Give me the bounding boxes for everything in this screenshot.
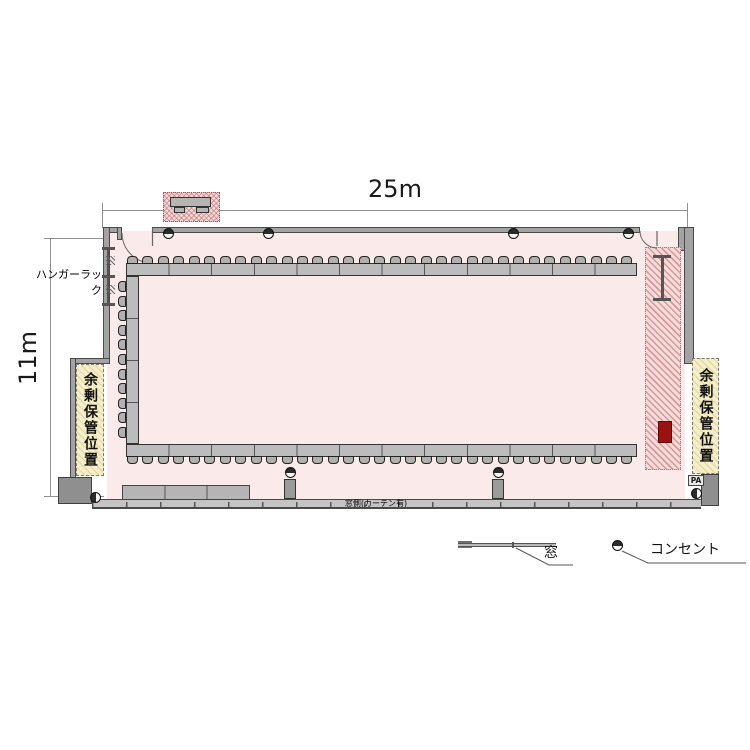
chair — [127, 456, 138, 464]
outlet-icon — [263, 228, 274, 239]
floor-outlet-pedestal — [492, 479, 504, 499]
floor-plan: 余剰保管位置 余剰保管位置 PA 窓 コンセント 25m 11m ハンガーラック… — [0, 0, 750, 750]
chair — [118, 398, 126, 409]
chair — [405, 456, 416, 464]
chair — [118, 383, 126, 394]
chair — [312, 256, 323, 264]
chair — [467, 256, 478, 264]
chair — [118, 369, 126, 380]
reception-table-leg — [196, 207, 209, 213]
chair — [529, 256, 540, 264]
outlet-icon — [623, 228, 634, 239]
chair — [142, 456, 153, 464]
chair — [405, 256, 416, 264]
chair — [359, 256, 370, 264]
chair — [575, 256, 586, 264]
chair — [390, 256, 401, 264]
window-counter — [122, 485, 250, 500]
dimension-tick — [102, 203, 103, 228]
table-column-left — [126, 276, 139, 444]
chair — [343, 256, 354, 264]
bottom-left-wall-block — [58, 477, 92, 504]
surplus-storage-right: 余剰保管位置 — [692, 358, 719, 474]
chair — [575, 456, 586, 464]
chair — [142, 256, 153, 264]
chair — [482, 256, 493, 264]
chair — [118, 339, 126, 350]
chair — [498, 256, 509, 264]
chair — [436, 256, 447, 264]
outlet-icon — [612, 540, 623, 551]
equipment-box — [658, 421, 672, 443]
chair — [118, 412, 126, 423]
chair — [118, 427, 126, 438]
rack-symbol-spine — [661, 256, 664, 300]
surplus-storage-left-label: 余剰保管位置 — [77, 365, 103, 475]
reception-table-leg — [174, 207, 185, 213]
chair — [312, 456, 323, 464]
chair — [513, 256, 524, 264]
legend-window-bar — [458, 543, 556, 547]
chair — [436, 456, 447, 464]
dimension-tick — [687, 203, 688, 228]
outlet-icon — [285, 467, 296, 478]
chair — [189, 256, 200, 264]
dimension-height-label: 11m — [14, 321, 48, 395]
chair — [421, 256, 432, 264]
chair — [374, 456, 385, 464]
chair — [118, 296, 126, 307]
chair — [513, 456, 524, 464]
pa-box: PA — [688, 475, 704, 486]
chair — [529, 456, 540, 464]
chair — [421, 456, 432, 464]
chair — [235, 456, 246, 464]
chair — [189, 456, 200, 464]
table-row-top — [126, 263, 637, 276]
chair — [498, 456, 509, 464]
chair — [266, 456, 277, 464]
chair — [235, 256, 246, 264]
hatch-mark — [106, 285, 115, 294]
chair — [328, 256, 339, 264]
outlet-icon — [90, 492, 101, 503]
door-jamb — [117, 227, 122, 240]
pa-label: PA — [691, 476, 702, 485]
outlet-icon — [508, 228, 519, 239]
chair — [282, 456, 293, 464]
chair — [390, 456, 401, 464]
chair — [621, 456, 632, 464]
chair — [118, 281, 126, 292]
chair — [343, 456, 354, 464]
chair — [158, 256, 169, 264]
chair — [297, 456, 308, 464]
surplus-storage-left: 余剰保管位置 — [76, 364, 104, 476]
chair — [591, 456, 602, 464]
legend-outlet-label: コンセント — [650, 539, 720, 559]
chair — [204, 256, 215, 264]
chair — [606, 256, 617, 264]
chair — [127, 256, 138, 264]
chair — [118, 310, 126, 321]
chair — [606, 456, 617, 464]
window-side-label: 窓側(カーテン有) — [340, 499, 412, 509]
chair — [118, 325, 126, 336]
chair — [266, 256, 277, 264]
chair — [220, 256, 231, 264]
chair — [251, 256, 262, 264]
dimension-tick — [44, 238, 104, 239]
chair — [359, 456, 370, 464]
legend-window-tick — [512, 542, 514, 548]
chair — [297, 256, 308, 264]
chair — [560, 256, 571, 264]
outlet-icon — [163, 228, 174, 239]
chair — [173, 256, 184, 264]
chair — [451, 256, 462, 264]
chair — [621, 256, 632, 264]
hatch-mark — [106, 256, 115, 265]
chair — [158, 456, 169, 464]
top-wall-main — [152, 227, 640, 233]
surplus-storage-right-label: 余剰保管位置 — [693, 359, 718, 473]
chair — [328, 456, 339, 464]
hanger-rack-label: ハンガーラック — [30, 266, 102, 298]
outlet-icon — [493, 467, 504, 478]
chair — [204, 456, 215, 464]
floor-outlet-pedestal — [284, 479, 296, 499]
chair — [118, 354, 126, 365]
chair — [544, 256, 555, 264]
chair — [251, 456, 262, 464]
outlet-icon — [691, 488, 702, 499]
dimension-width-label: 25m — [345, 175, 445, 203]
chair — [220, 456, 231, 464]
chair — [451, 456, 462, 464]
chair — [282, 256, 293, 264]
chair — [591, 256, 602, 264]
chair — [482, 456, 493, 464]
legend-window-label: 窓 — [544, 542, 558, 562]
chair — [560, 456, 571, 464]
chair — [173, 456, 184, 464]
chair — [467, 456, 478, 464]
chair — [374, 256, 385, 264]
right-wall-upper — [684, 227, 694, 364]
chair — [544, 456, 555, 464]
reception-table — [170, 197, 211, 207]
